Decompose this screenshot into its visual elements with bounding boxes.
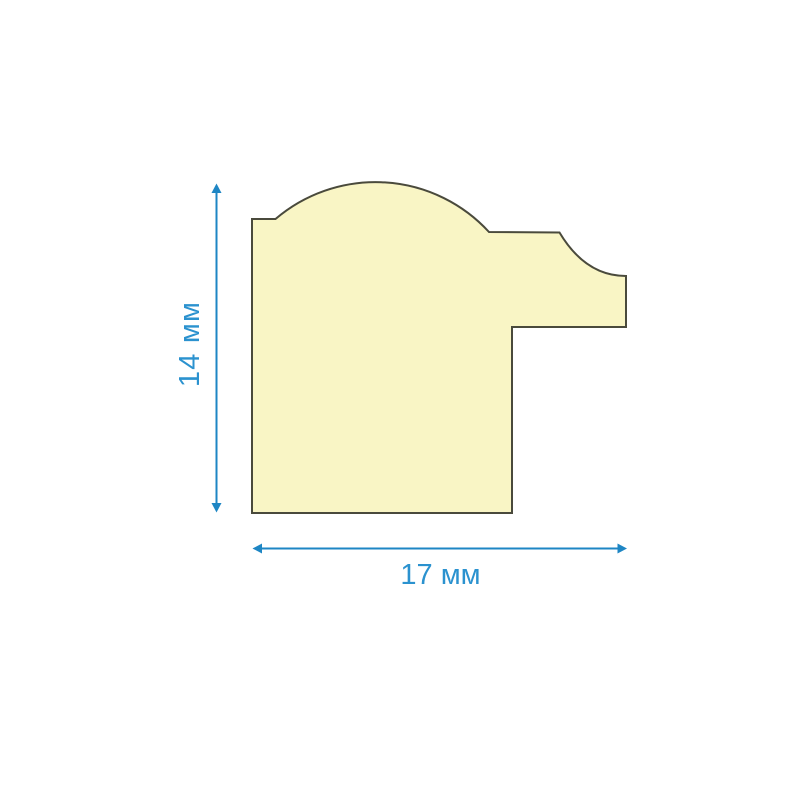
svg-text:17 мм: 17 мм bbox=[400, 559, 480, 591]
svg-text:14 мм: 14 мм bbox=[174, 301, 206, 387]
